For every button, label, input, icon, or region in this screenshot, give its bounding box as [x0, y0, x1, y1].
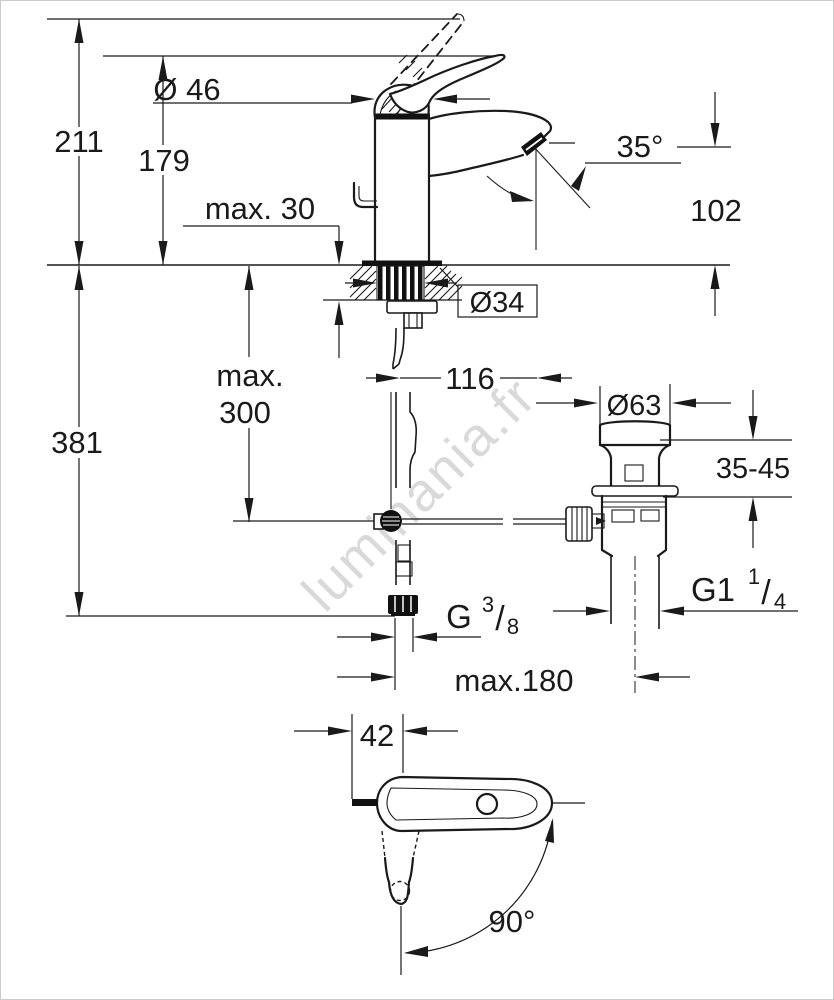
dim-waste-deck-range: 35-45: [716, 453, 790, 485]
waste-thread-numerator: 1: [748, 564, 760, 589]
dim-spout-projection: 116: [445, 361, 494, 396]
supply-thread-numerator: 3: [482, 592, 494, 617]
waste-thread-g1: G1: [691, 571, 735, 608]
dim-handle-width: 42: [360, 718, 394, 753]
watermark-text: luminania.fr: [291, 366, 548, 623]
dim-spout-height: 102: [690, 193, 742, 228]
dim-hole-diameter: Ø34: [470, 287, 525, 319]
dim-aerator-angle: 35°: [617, 129, 664, 164]
pop-up-waste-assembly: [566, 421, 678, 693]
dim-waste-flange-diameter: Ø63: [607, 390, 662, 422]
technical-drawing-page: luminania.fr: [0, 0, 834, 1000]
dim-below-deck-depth: 381: [51, 425, 103, 460]
dim-rod-reach-max: max.180: [455, 663, 574, 698]
dim-cartridge-diameter: Ø 46: [153, 72, 220, 107]
waste-thread-denominator: 4: [774, 589, 786, 614]
aerator-top-view: [391, 882, 410, 901]
faucet-top-view: [352, 777, 552, 904]
dim-swivel-angle: 90°: [489, 904, 536, 939]
dim-deck-thickness: max. 30: [205, 191, 315, 226]
dim-supply-thread: G 3 / 8: [446, 592, 519, 639]
dim-waste-thread: G1 1 / 4: [691, 564, 786, 614]
rod-clamp-knob: [566, 507, 592, 541]
dim-rod-depth-max: max.: [216, 358, 283, 393]
supply-thread-denominator: 8: [507, 614, 519, 639]
supply-thread-slash: /: [495, 600, 505, 638]
lever-handle: [390, 55, 505, 113]
faucet-side-view: [354, 14, 551, 266]
dim-overall-height: 211: [54, 124, 103, 159]
waste-thread-slash: /: [761, 574, 771, 612]
faucet-dimension-drawing: luminania.fr: [0, 0, 834, 1000]
dim-rod-depth-value: 300: [219, 395, 271, 430]
supply-thread-g: G: [446, 598, 472, 635]
supply-shank-and-hose: [233, 301, 566, 616]
dim-lever-height: 179: [138, 143, 190, 178]
handle-top-view: [377, 777, 552, 831]
